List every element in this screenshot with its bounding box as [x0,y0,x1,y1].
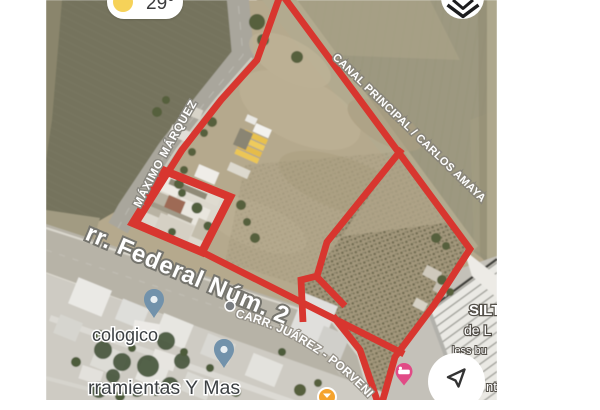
svg-text:cologico: cologico [92,325,158,345]
svg-text:de L: de L [464,322,491,338]
svg-text:nt: nt [486,379,497,394]
svg-text:SILT: SILT [469,302,497,319]
svg-text:rramientas Y Mas: rramientas Y Mas [88,377,240,399]
